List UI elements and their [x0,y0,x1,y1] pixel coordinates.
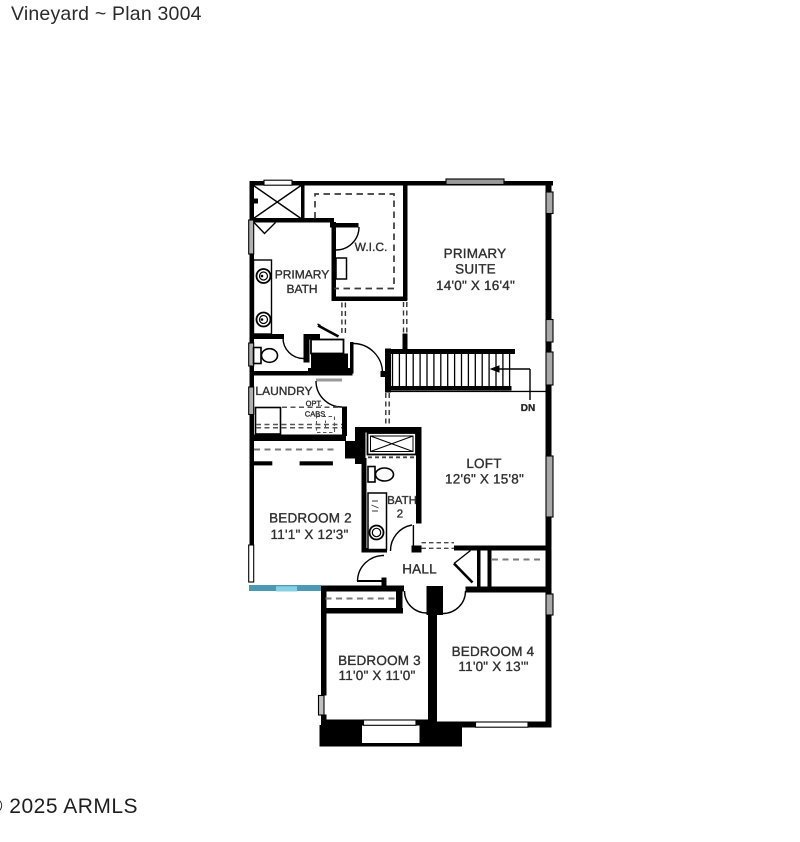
svg-text:BATH: BATH [387,495,417,507]
svg-text:2: 2 [397,509,403,521]
svg-text:BEDROOM 2: BEDROOM 2 [269,511,352,526]
svg-text:DN: DN [521,403,535,414]
svg-text:BEDROOM 4: BEDROOM 4 [452,644,535,659]
svg-text:LOFT: LOFT [466,456,501,471]
svg-text:LAUNDRY: LAUNDRY [255,384,312,398]
svg-text:W.I.C.: W.I.C. [355,240,388,254]
svg-text:11'0" X 11'0": 11'0" X 11'0" [339,668,416,683]
svg-text:CABS: CABS [305,410,325,419]
svg-text:OPT.: OPT. [306,399,323,408]
svg-text:PRIMARY: PRIMARY [275,268,329,282]
svg-text:BEDROOM 3: BEDROOM 3 [338,653,421,668]
svg-text:12'6" X 15'8": 12'6" X 15'8" [445,472,524,487]
svg-text:BATH: BATH [286,282,317,296]
svg-text:SUITE: SUITE [455,262,496,277]
svg-text:PRIMARY: PRIMARY [444,246,507,261]
svg-text:11'0" X 13'": 11'0" X 13'" [458,659,528,674]
svg-text:14'0" X 16'4": 14'0" X 16'4" [436,278,515,293]
svg-text:11'1" X 12'3": 11'1" X 12'3" [271,527,349,542]
svg-text:HALL: HALL [402,562,437,577]
